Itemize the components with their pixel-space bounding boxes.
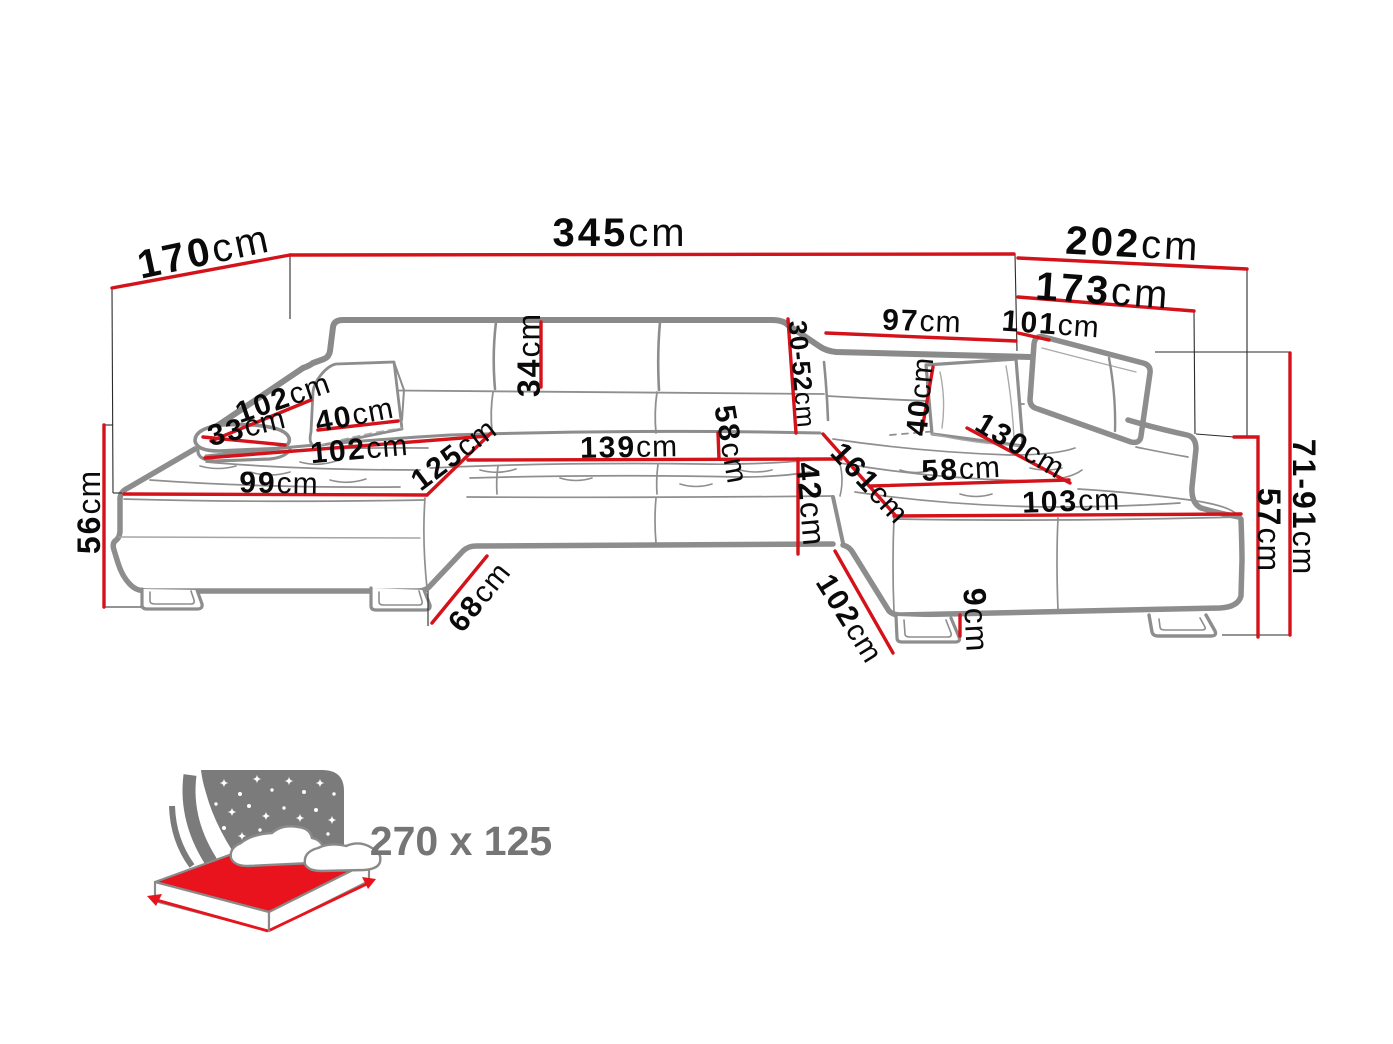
svg-text:58cm: 58cm [707,403,753,487]
svg-text:9cm: 9cm [956,587,995,653]
svg-text:202cm: 202cm [1064,218,1201,269]
svg-text:102cm: 102cm [809,569,889,670]
svg-text:345cm: 345cm [552,211,687,255]
svg-text:97cm: 97cm [882,304,962,340]
svg-text:71-91cm: 71-91cm [1286,439,1322,576]
svg-text:58cm: 58cm [921,451,1002,488]
svg-text:103cm: 103cm [1022,483,1121,519]
svg-text:139cm: 139cm [580,430,679,465]
svg-text:42cm: 42cm [789,461,832,548]
svg-text:56cm: 56cm [71,470,107,554]
svg-text:125cm: 125cm [405,412,503,497]
svg-text:101cm: 101cm [1001,305,1101,345]
svg-text:40cm: 40cm [901,355,941,437]
svg-text:30-52cm: 30-52cm [782,319,821,429]
svg-text:99cm: 99cm [239,466,319,500]
svg-text:57cm: 57cm [1251,488,1287,572]
svg-text:270 x 125: 270 x 125 [370,818,552,864]
svg-text:170cm: 170cm [134,216,275,287]
